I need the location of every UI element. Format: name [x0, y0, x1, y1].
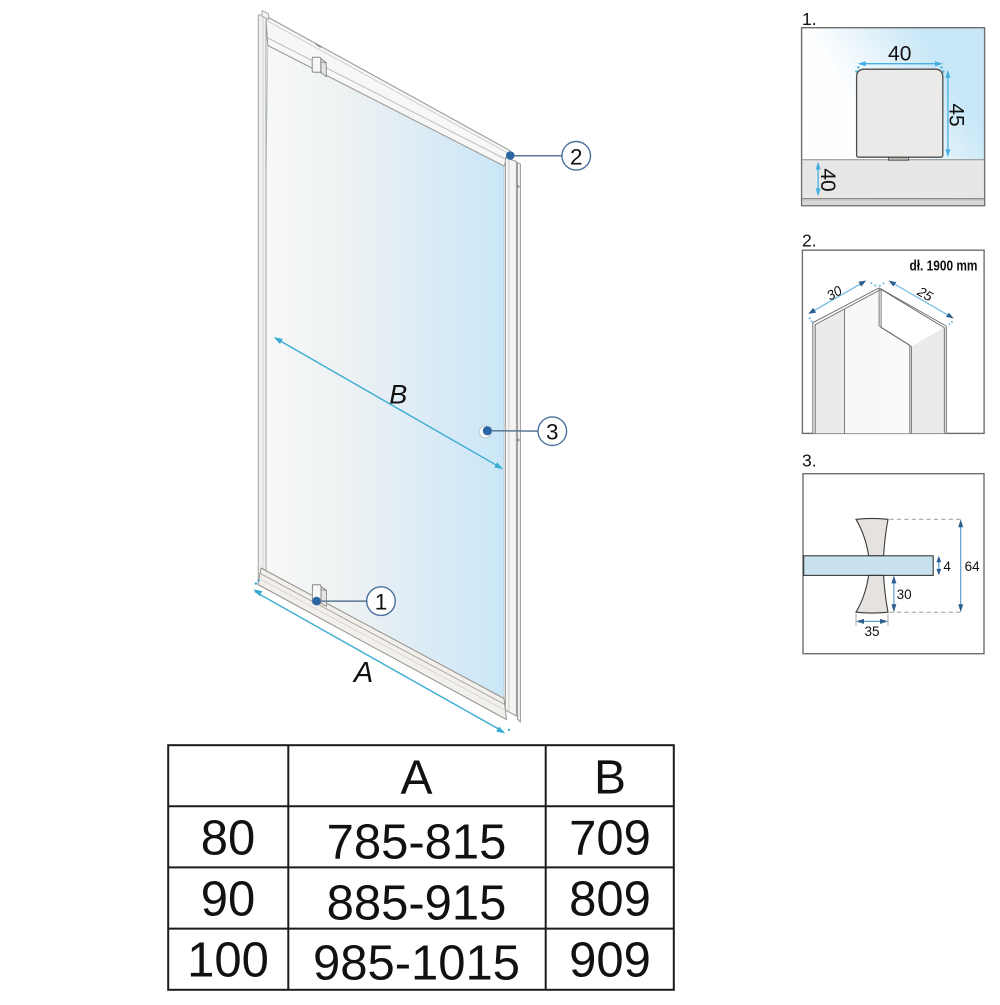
svg-text:809: 809 — [569, 873, 651, 927]
svg-text:A: A — [352, 657, 373, 689]
svg-text:30: 30 — [897, 587, 912, 602]
svg-text:B: B — [389, 380, 407, 410]
svg-text:2: 2 — [570, 144, 583, 169]
svg-text:dł. 1900 mm: dł. 1900 mm — [910, 257, 978, 274]
svg-text:80: 80 — [201, 811, 256, 865]
svg-text:909: 909 — [569, 934, 651, 988]
svg-text:40: 40 — [816, 168, 839, 191]
svg-text:1.: 1. — [802, 9, 817, 29]
svg-text:709: 709 — [569, 811, 651, 865]
svg-text:100: 100 — [187, 934, 269, 988]
svg-text:64: 64 — [965, 559, 981, 574]
svg-text:2.: 2. — [802, 231, 817, 251]
svg-text:885-915: 885-915 — [327, 877, 507, 931]
svg-text:A: A — [400, 751, 432, 804]
svg-text:45: 45 — [945, 103, 968, 126]
svg-text:35: 35 — [864, 624, 879, 639]
svg-text:90: 90 — [201, 873, 256, 927]
svg-text:B: B — [594, 751, 626, 804]
svg-text:40: 40 — [888, 43, 911, 66]
svg-text:3: 3 — [546, 420, 559, 445]
svg-text:985-1015: 985-1015 — [313, 937, 520, 991]
svg-text:3.: 3. — [802, 451, 817, 471]
svg-text:785-815: 785-815 — [327, 815, 507, 869]
svg-text:1: 1 — [375, 589, 388, 614]
svg-text:4: 4 — [943, 559, 951, 574]
